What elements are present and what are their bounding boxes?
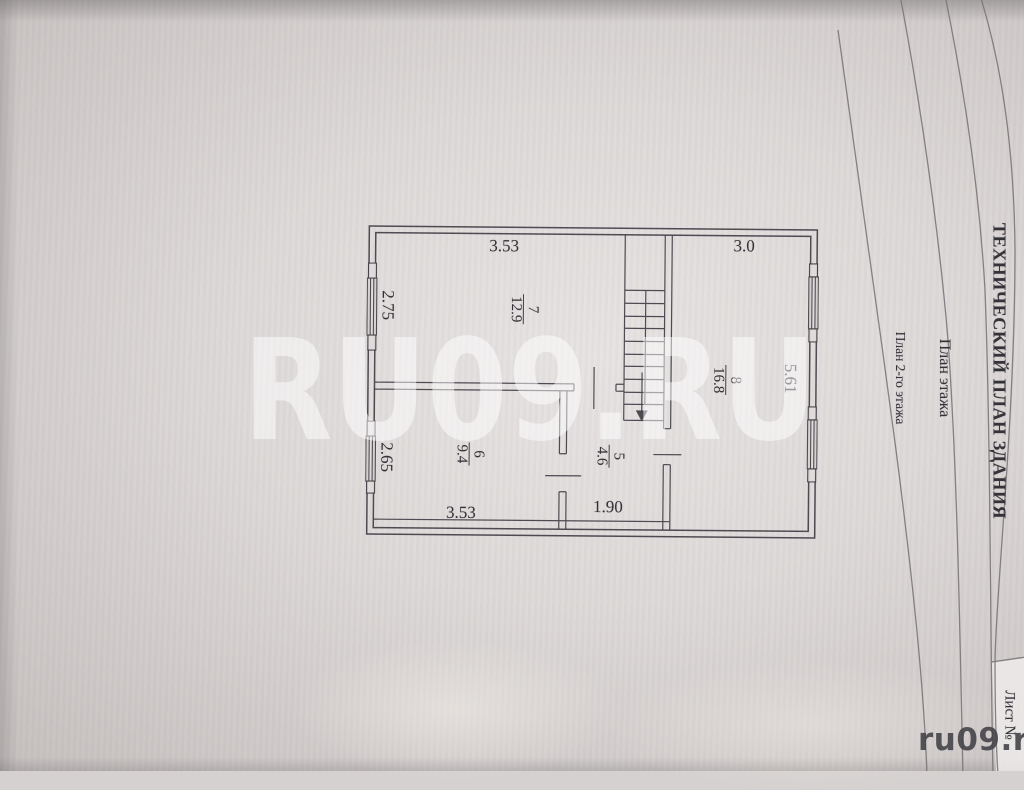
dimension-label: 3.0 (733, 236, 754, 256)
wall-pier (367, 481, 375, 493)
section-title: План этажа (935, 339, 953, 418)
dimension-label: 1.90 (593, 497, 623, 517)
drawing-caption: План 2-го этажа (892, 332, 908, 425)
dimension-label: 3.53 (489, 236, 519, 256)
wall-pier (368, 263, 376, 278)
document-title: ТЕХНИЧЕСКИЙ ПЛАН ЗДАНИЯ (989, 223, 1010, 519)
bottom-wall-inner-line (373, 519, 669, 522)
dimension-label: 3.53 (446, 503, 476, 523)
wall-pier (809, 264, 817, 277)
watermark-large: RU09.RU (243, 322, 817, 462)
watermark-corner: ru09.ru (918, 722, 1024, 758)
photographed-document: 3.53 3.0 2.75 2.65 5.61 3.53 1.90 7 12.9… (0, 0, 1024, 771)
